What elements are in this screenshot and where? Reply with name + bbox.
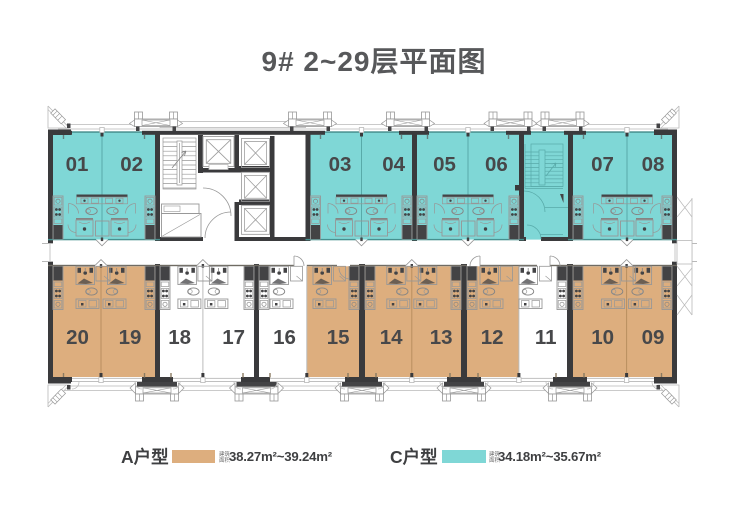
svg-text:11: 11 <box>535 326 557 349</box>
svg-text:C户型: C户型 <box>390 447 438 467</box>
svg-text:20: 20 <box>66 326 89 349</box>
svg-text:03: 03 <box>329 153 352 176</box>
svg-text:16: 16 <box>273 326 296 349</box>
svg-text:05: 05 <box>433 153 456 176</box>
svg-text:12: 12 <box>481 326 504 349</box>
svg-text:08: 08 <box>642 153 665 176</box>
svg-text:15: 15 <box>327 326 350 349</box>
svg-text:04: 04 <box>382 153 405 176</box>
svg-text:34.18m²~35.67m²: 34.18m²~35.67m² <box>498 449 602 464</box>
svg-text:06: 06 <box>485 153 508 176</box>
svg-text:18: 18 <box>168 326 191 349</box>
svg-text:02: 02 <box>120 153 143 176</box>
svg-text:17: 17 <box>222 326 245 349</box>
svg-text:01: 01 <box>66 153 89 176</box>
svg-text:38.27m²~39.24m²: 38.27m²~39.24m² <box>229 449 333 464</box>
svg-text:14: 14 <box>380 326 403 349</box>
svg-text:A户型: A户型 <box>121 447 169 467</box>
svg-text:9# 2~29层平面图: 9# 2~29层平面图 <box>262 46 487 77</box>
svg-text:13: 13 <box>430 326 453 349</box>
svg-text:09: 09 <box>642 326 665 349</box>
svg-text:10: 10 <box>591 326 614 349</box>
svg-text:19: 19 <box>119 326 142 349</box>
svg-text:07: 07 <box>591 153 614 176</box>
